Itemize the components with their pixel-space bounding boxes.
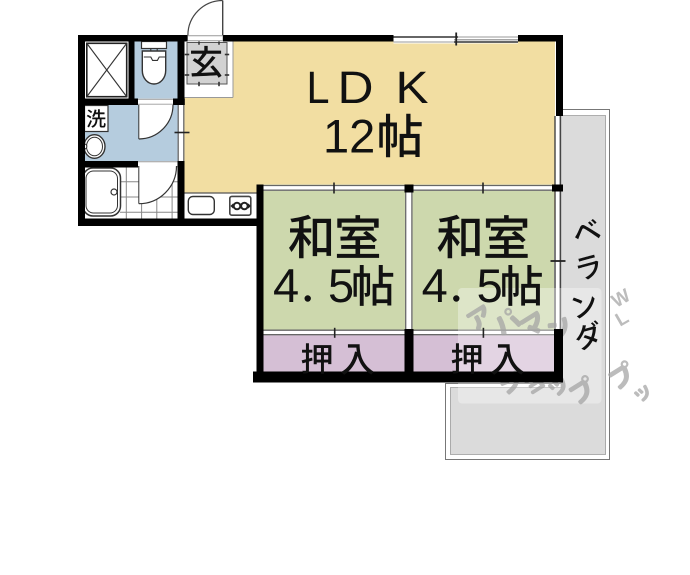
svg-text:4: 4 [422,259,448,312]
svg-text:5: 5 [477,259,503,312]
svg-text:D: D [338,62,374,113]
svg-text:K: K [396,62,429,113]
svg-text:4: 4 [273,259,299,312]
svg-text:L: L [307,62,330,113]
svg-text:12: 12 [323,110,375,163]
svg-text:5: 5 [328,259,354,312]
